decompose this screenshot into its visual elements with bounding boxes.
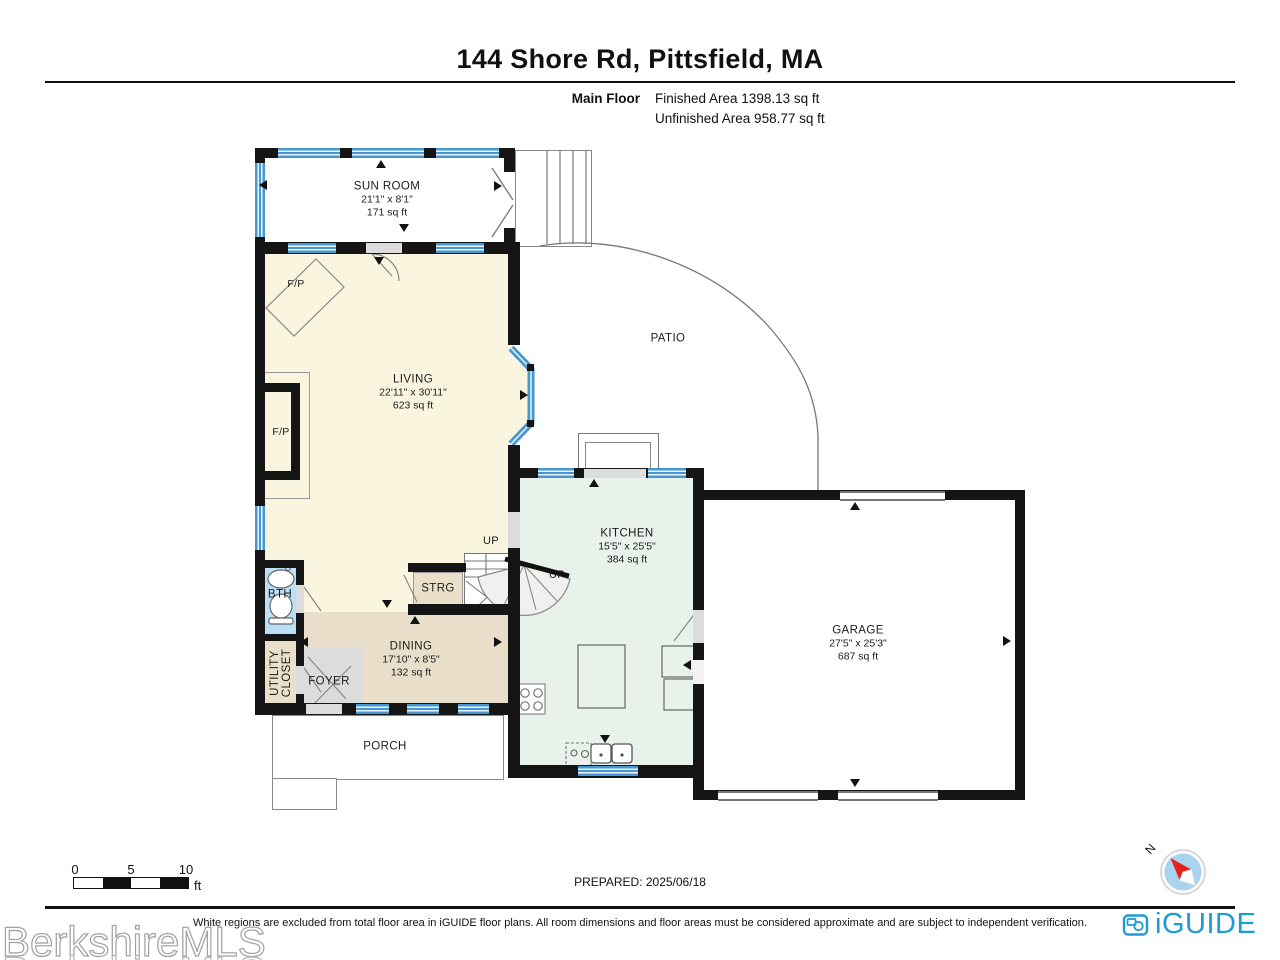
entrance-arrow (399, 224, 409, 232)
dining-label: DINING 17'10" x 8'5" 132 sq ft (382, 641, 440, 680)
iguide-camera-icon (1122, 911, 1150, 939)
window (436, 243, 484, 253)
room-name: LIVING (379, 374, 447, 387)
wall (1015, 490, 1025, 800)
entrance-arrow (259, 180, 267, 190)
window (255, 163, 265, 237)
room-dims: 17'10" x 8'5" (382, 654, 440, 667)
bay-joint-top (527, 364, 534, 371)
door-opening (366, 243, 402, 253)
spiral-up-label: UP (549, 569, 565, 581)
wall (408, 604, 513, 615)
room-name: STRG (421, 583, 455, 596)
slider-opening (584, 469, 646, 478)
scale-unit: ft (194, 878, 201, 893)
window (356, 704, 389, 714)
floor-plan-page: 144 Shore Rd, Pittsfield, MA Main Floor … (0, 0, 1280, 960)
scale-segment (131, 878, 160, 888)
entrance-arrow (850, 502, 860, 510)
window (538, 468, 574, 478)
wall (255, 550, 265, 715)
room-dims: 27'5" x 25'3" (829, 638, 887, 651)
window (578, 766, 638, 776)
kitchen-label: KITCHEN 15'5" x 25'5" 384 sq ft (598, 528, 656, 567)
garage-overhead-door (840, 491, 945, 501)
fireplace-top (265, 383, 293, 392)
passage-opening (508, 512, 520, 548)
room-name: GARAGE (829, 625, 887, 638)
entrance-arrow (494, 637, 502, 647)
fireplace-label: F/P (272, 426, 289, 438)
room-name: DINING (382, 641, 440, 654)
entrance-arrow (410, 616, 420, 624)
dishwasher (566, 743, 591, 766)
garage-overhead-door (718, 791, 818, 801)
room-name: PATIO (651, 333, 686, 346)
entrance-arrow (300, 637, 308, 647)
wall (255, 254, 265, 506)
garage-side-opening (693, 660, 704, 684)
window (407, 704, 439, 714)
compass-icon (1157, 846, 1209, 898)
bathroom-door-swing (304, 587, 321, 611)
wall (408, 563, 466, 572)
sunroom-double-door (492, 168, 513, 237)
scale-tick-0: 0 (71, 862, 78, 877)
entrance-arrow (1003, 636, 1011, 646)
kitchen-sink (591, 744, 632, 763)
entrance-arrow (683, 660, 691, 670)
utility-closet-label: UTILITY CLOSET (269, 649, 293, 697)
bath-door-opening (296, 585, 304, 613)
room-name: PORCH (363, 741, 407, 754)
entrance-arrow (374, 257, 384, 265)
fireplace-bottom (265, 471, 293, 480)
entrance-arrow (494, 181, 502, 191)
wall (508, 445, 520, 512)
porch-label: PORCH (363, 741, 407, 754)
kitchen-counter-2 (664, 679, 695, 710)
entry-door-opening (306, 704, 342, 714)
fireplace-side (291, 383, 300, 480)
room-dims: 22'11" x 30'11" (379, 387, 447, 400)
patio-boundary-curve (540, 243, 818, 490)
room-area: 623 sq ft (379, 400, 447, 413)
entrance-arrow (600, 735, 610, 743)
scale-segment (160, 878, 189, 888)
window (288, 243, 336, 253)
room-name: KITCHEN (598, 528, 656, 541)
entrance-arrow (376, 160, 386, 168)
entrance-arrow (382, 600, 392, 608)
stove (517, 684, 545, 714)
room-area: 171 sq ft (354, 207, 420, 220)
room-area: 384 sq ft (598, 554, 656, 567)
scale-tick-5: 5 (127, 862, 134, 877)
scale-segment (74, 878, 103, 888)
entrance-arrow (850, 779, 860, 787)
kitchen-island (578, 645, 625, 708)
living-room-label: LIVING 22'11" x 30'11" 623 sq ft (379, 374, 447, 413)
patio-label: PATIO (651, 333, 686, 346)
room-name: BTH (268, 589, 292, 602)
garage-door-opening (693, 610, 704, 643)
bay-joint-bottom (527, 420, 534, 427)
scale-bar (73, 877, 189, 889)
sun-room-label: SUN ROOM 21'1" x 8'1" 171 sq ft (354, 181, 420, 220)
room-name-line2: CLOSET (281, 649, 293, 697)
room-area: 687 sq ft (829, 651, 887, 664)
window (278, 148, 340, 158)
garage-label: GARAGE 27'5" x 25'3" 687 sq ft (829, 625, 887, 664)
room-name-line1: UTILITY (269, 649, 281, 697)
entrance-arrow (589, 479, 599, 487)
scale-tick-10: 10 (179, 862, 193, 877)
room-area: 132 sq ft (382, 667, 440, 680)
storage-label: STRG (421, 583, 455, 596)
entrance-arrow (520, 390, 528, 400)
wall (504, 148, 515, 172)
bathroom-sink (268, 566, 294, 589)
scale-segment (103, 878, 132, 888)
room-dims: 15'5" x 25'5" (598, 541, 656, 554)
room-name: SUN ROOM (354, 181, 420, 194)
bath-label: BTH (268, 589, 292, 602)
garage-overhead-door (838, 791, 938, 801)
window (458, 704, 489, 714)
plan-linework (0, 0, 1280, 960)
watermark-clipped: BerkshireMLS (2, 952, 266, 960)
room-name: FOYER (308, 676, 350, 689)
utility-door-opening (296, 666, 304, 694)
room-dims: 21'1" x 8'1" (354, 194, 420, 207)
wall (508, 254, 520, 345)
deck-stairs-treads (547, 151, 586, 244)
foyer-label: FOYER (308, 676, 350, 689)
corner-fireplace-outline (266, 259, 344, 336)
window (648, 468, 686, 478)
window (352, 148, 424, 158)
window (255, 506, 265, 550)
iguide-logo: iGUIDE (1122, 908, 1256, 941)
wall (508, 616, 520, 778)
wall (255, 634, 304, 641)
stairs-up-label: UP (483, 535, 499, 547)
storage-door-swing (404, 575, 417, 602)
window (436, 148, 499, 158)
fireplace-label: F/P (287, 278, 304, 290)
iguide-brand-text: iGUIDE (1155, 908, 1256, 941)
